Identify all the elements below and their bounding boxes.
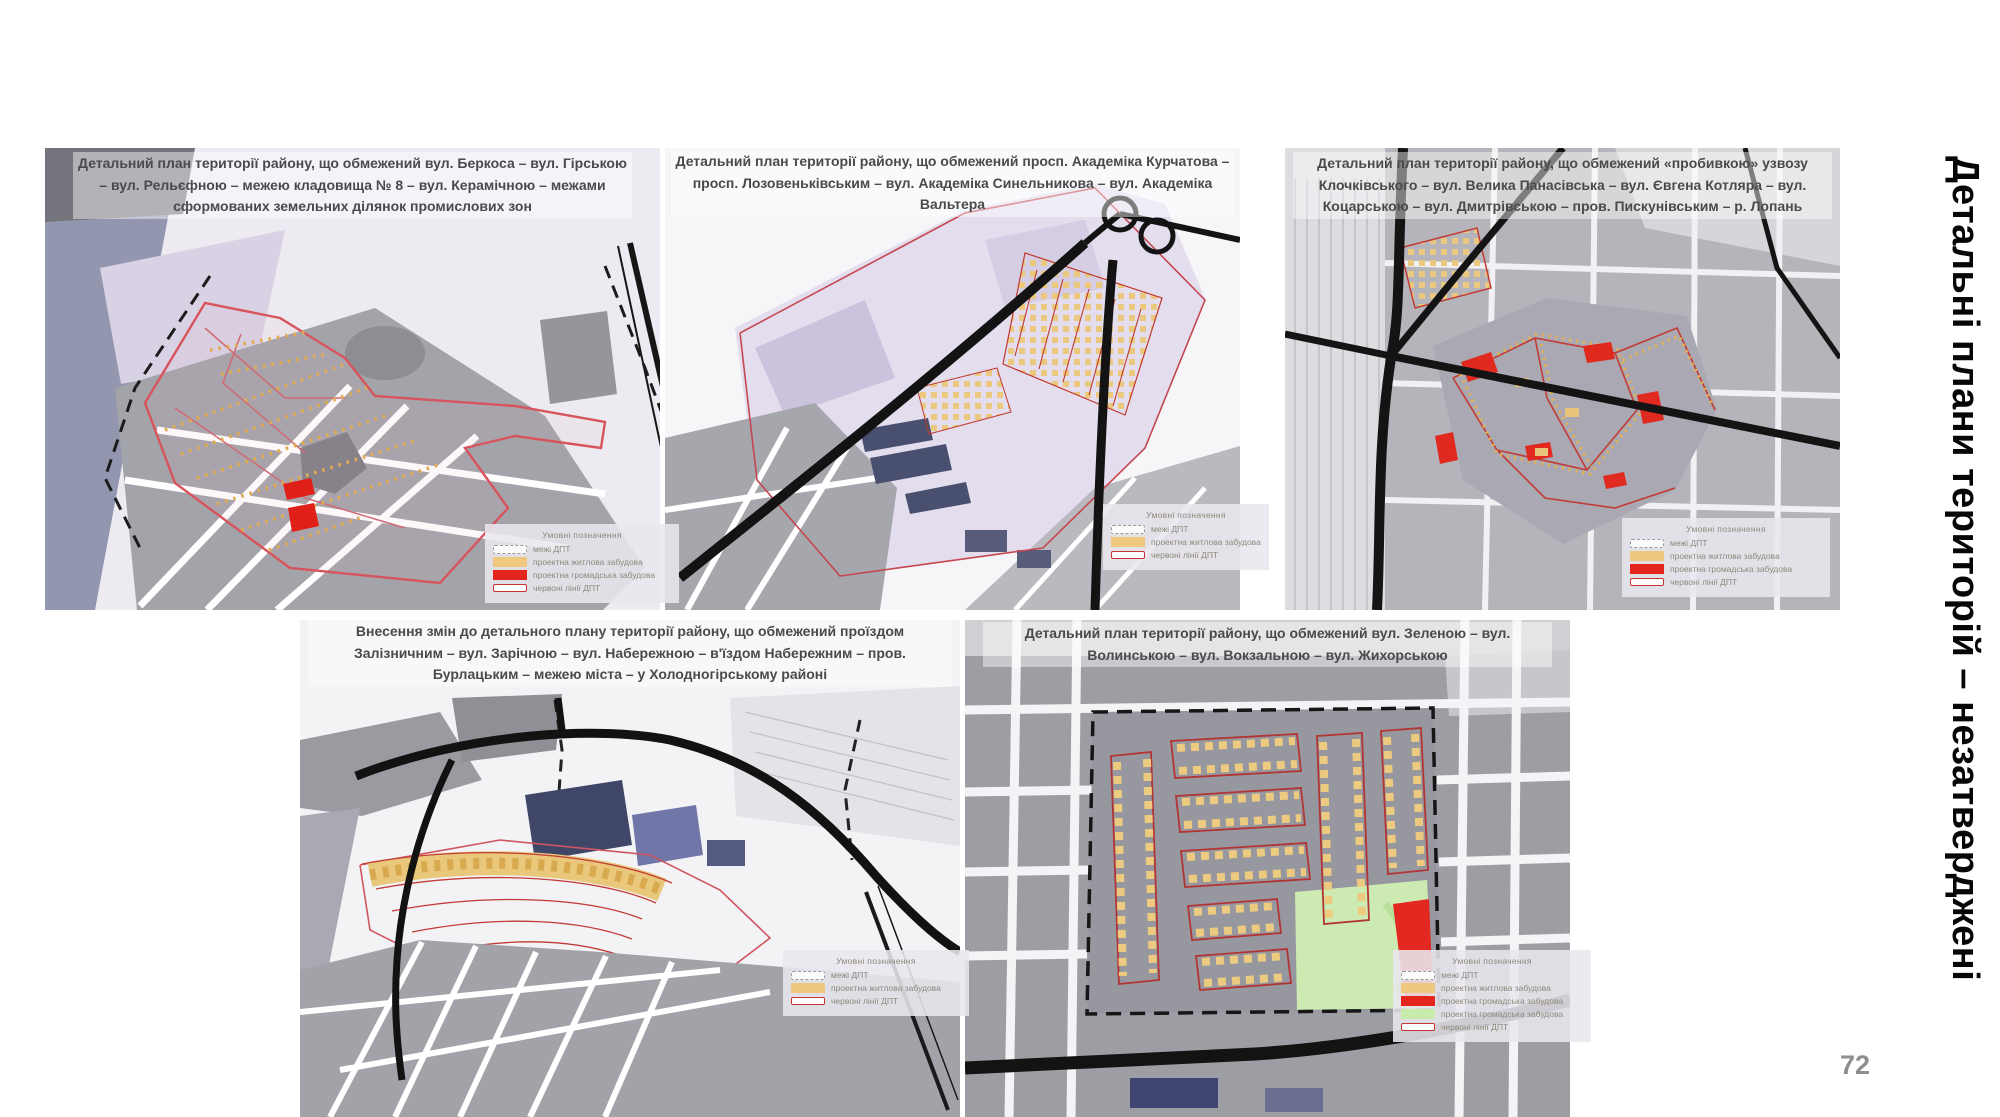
legend-item-label: червоні лінії ДПТ xyxy=(1441,1022,1508,1032)
legend-item-label: проектна громадська забудова xyxy=(1441,996,1563,1006)
legend-swatch-residential xyxy=(1401,983,1435,993)
legend-item: червоні лінії ДПТ xyxy=(1111,550,1261,560)
map-panel-1: Детальний план території району, що обме… xyxy=(45,148,660,610)
legend-item-label: межі ДПТ xyxy=(533,544,570,554)
legend-item-label: проектна громадська забудова xyxy=(533,570,655,580)
slide-vertical-title: Детальні плани територій – незатверджені xyxy=(1943,156,1986,981)
legend-item: межі ДПТ xyxy=(791,970,961,980)
legend-item: межі ДПТ xyxy=(1630,538,1822,548)
map-4-graphic xyxy=(300,620,960,1117)
legend-swatch-residential xyxy=(1111,537,1145,547)
legend-swatch-red-lines xyxy=(1630,578,1664,586)
legend-item-label: межі ДПТ xyxy=(1670,538,1707,548)
page-number: 72 xyxy=(1840,1050,1870,1081)
legend-item-label: проектна громадська забудова xyxy=(1441,1009,1563,1019)
legend-item-label: проектна житлова забудова xyxy=(1441,983,1551,993)
legend-item: проектна житлова забудова xyxy=(1401,983,1583,993)
legend-swatch-red-lines xyxy=(1111,551,1145,559)
legend-swatch-dpt-boundary xyxy=(1401,971,1435,980)
map-panel-5: Детальний план території району, що обме… xyxy=(965,620,1570,1117)
legend-item: червоні лінії ДПТ xyxy=(493,583,671,593)
map-1-legend: Умовні позначення межі ДПТ проектна житл… xyxy=(485,524,679,603)
legend-item-label: червоні лінії ДПТ xyxy=(831,996,898,1006)
legend-swatch-residential xyxy=(493,557,527,567)
legend-item-label: проектна житлова забудова xyxy=(533,557,643,567)
map-2-legend: Умовні позначення межі ДПТ проектна житл… xyxy=(1103,504,1269,570)
legend-swatch-dpt-boundary xyxy=(791,971,825,980)
map-4-legend: Умовні позначення межі ДПТ проектна житл… xyxy=(783,950,969,1016)
map-4-title: Внесення змін до детального плану терито… xyxy=(308,620,952,687)
legend-swatch-residential xyxy=(1630,551,1664,561)
legend-item-label: червоні лінії ДПТ xyxy=(1670,577,1737,587)
map-5-graphic xyxy=(965,620,1570,1117)
legend-item: червоні лінії ДПТ xyxy=(1401,1022,1583,1032)
legend-item: проектна житлова забудова xyxy=(1111,537,1261,547)
legend-swatch-public xyxy=(493,570,527,580)
legend-item: межі ДПТ xyxy=(1111,524,1261,534)
legend-header: Умовні позначення xyxy=(1401,956,1583,966)
map-3-title: Детальний план території району, що обме… xyxy=(1293,152,1832,219)
legend-swatch-dpt-boundary xyxy=(493,545,527,554)
map-panel-4: Внесення змін до детального плану терито… xyxy=(300,620,960,1117)
legend-item: проектна громадська забудова xyxy=(493,570,671,580)
legend-item-label: проектна житлова забудова xyxy=(1670,551,1780,561)
legend-item-label: червоні лінії ДПТ xyxy=(1151,550,1218,560)
legend-item: проектна житлова забудова xyxy=(1630,551,1822,561)
map-panel-3: Детальний план території району, що обме… xyxy=(1285,148,1840,610)
legend-item: проектна житлова забудова xyxy=(791,983,961,993)
legend-swatch-red-lines xyxy=(1401,1023,1435,1031)
legend-swatch-dpt-boundary xyxy=(1630,539,1664,548)
legend-swatch-public xyxy=(1630,564,1664,574)
legend-swatch-residential xyxy=(791,983,825,993)
legend-header: Умовні позначення xyxy=(1111,510,1261,520)
legend-item-label: проектна житлова забудова xyxy=(1151,537,1261,547)
map-3-legend: Умовні позначення межі ДПТ проектна житл… xyxy=(1622,518,1830,597)
legend-swatch-green xyxy=(1401,1009,1435,1019)
legend-item: проектна житлова забудова xyxy=(493,557,671,567)
legend-item: проектна громадська забудова xyxy=(1401,996,1583,1006)
legend-swatch-dpt-boundary xyxy=(1111,525,1145,534)
map-5-legend: Умовні позначення межі ДПТ проектна житл… xyxy=(1393,950,1591,1042)
legend-item-label: межі ДПТ xyxy=(831,970,868,980)
slide: Детальний план території району, що обме… xyxy=(0,0,2000,1117)
legend-swatch-red-lines xyxy=(791,997,825,1005)
map-panel-2: Детальний план території району, що обме… xyxy=(665,148,1240,610)
legend-item-label: межі ДПТ xyxy=(1441,970,1478,980)
legend-item-label: проектна громадська забудова xyxy=(1670,564,1792,574)
legend-item: проектна громадська забудова xyxy=(1630,564,1822,574)
legend-swatch-public xyxy=(1401,996,1435,1006)
legend-item-label: проектна житлова забудова xyxy=(831,983,941,993)
legend-header: Умовні позначення xyxy=(493,530,671,540)
legend-item: червоні лінії ДПТ xyxy=(1630,577,1822,587)
legend-item: проектна громадська забудова xyxy=(1401,1009,1583,1019)
legend-item: червоні лінії ДПТ xyxy=(791,996,961,1006)
legend-header: Умовні позначення xyxy=(791,956,961,966)
legend-item-label: межі ДПТ xyxy=(1151,524,1188,534)
legend-item: межі ДПТ xyxy=(1401,970,1583,980)
map-1-title: Детальний план території району, що обме… xyxy=(73,152,632,219)
legend-header: Умовні позначення xyxy=(1630,524,1822,534)
legend-item-label: червоні лінії ДПТ xyxy=(533,583,600,593)
map-5-title: Детальний план території району, що обме… xyxy=(983,622,1552,667)
legend-item: межі ДПТ xyxy=(493,544,671,554)
map-2-title: Детальний план території району, що обме… xyxy=(671,150,1234,217)
legend-swatch-red-lines xyxy=(493,584,527,592)
